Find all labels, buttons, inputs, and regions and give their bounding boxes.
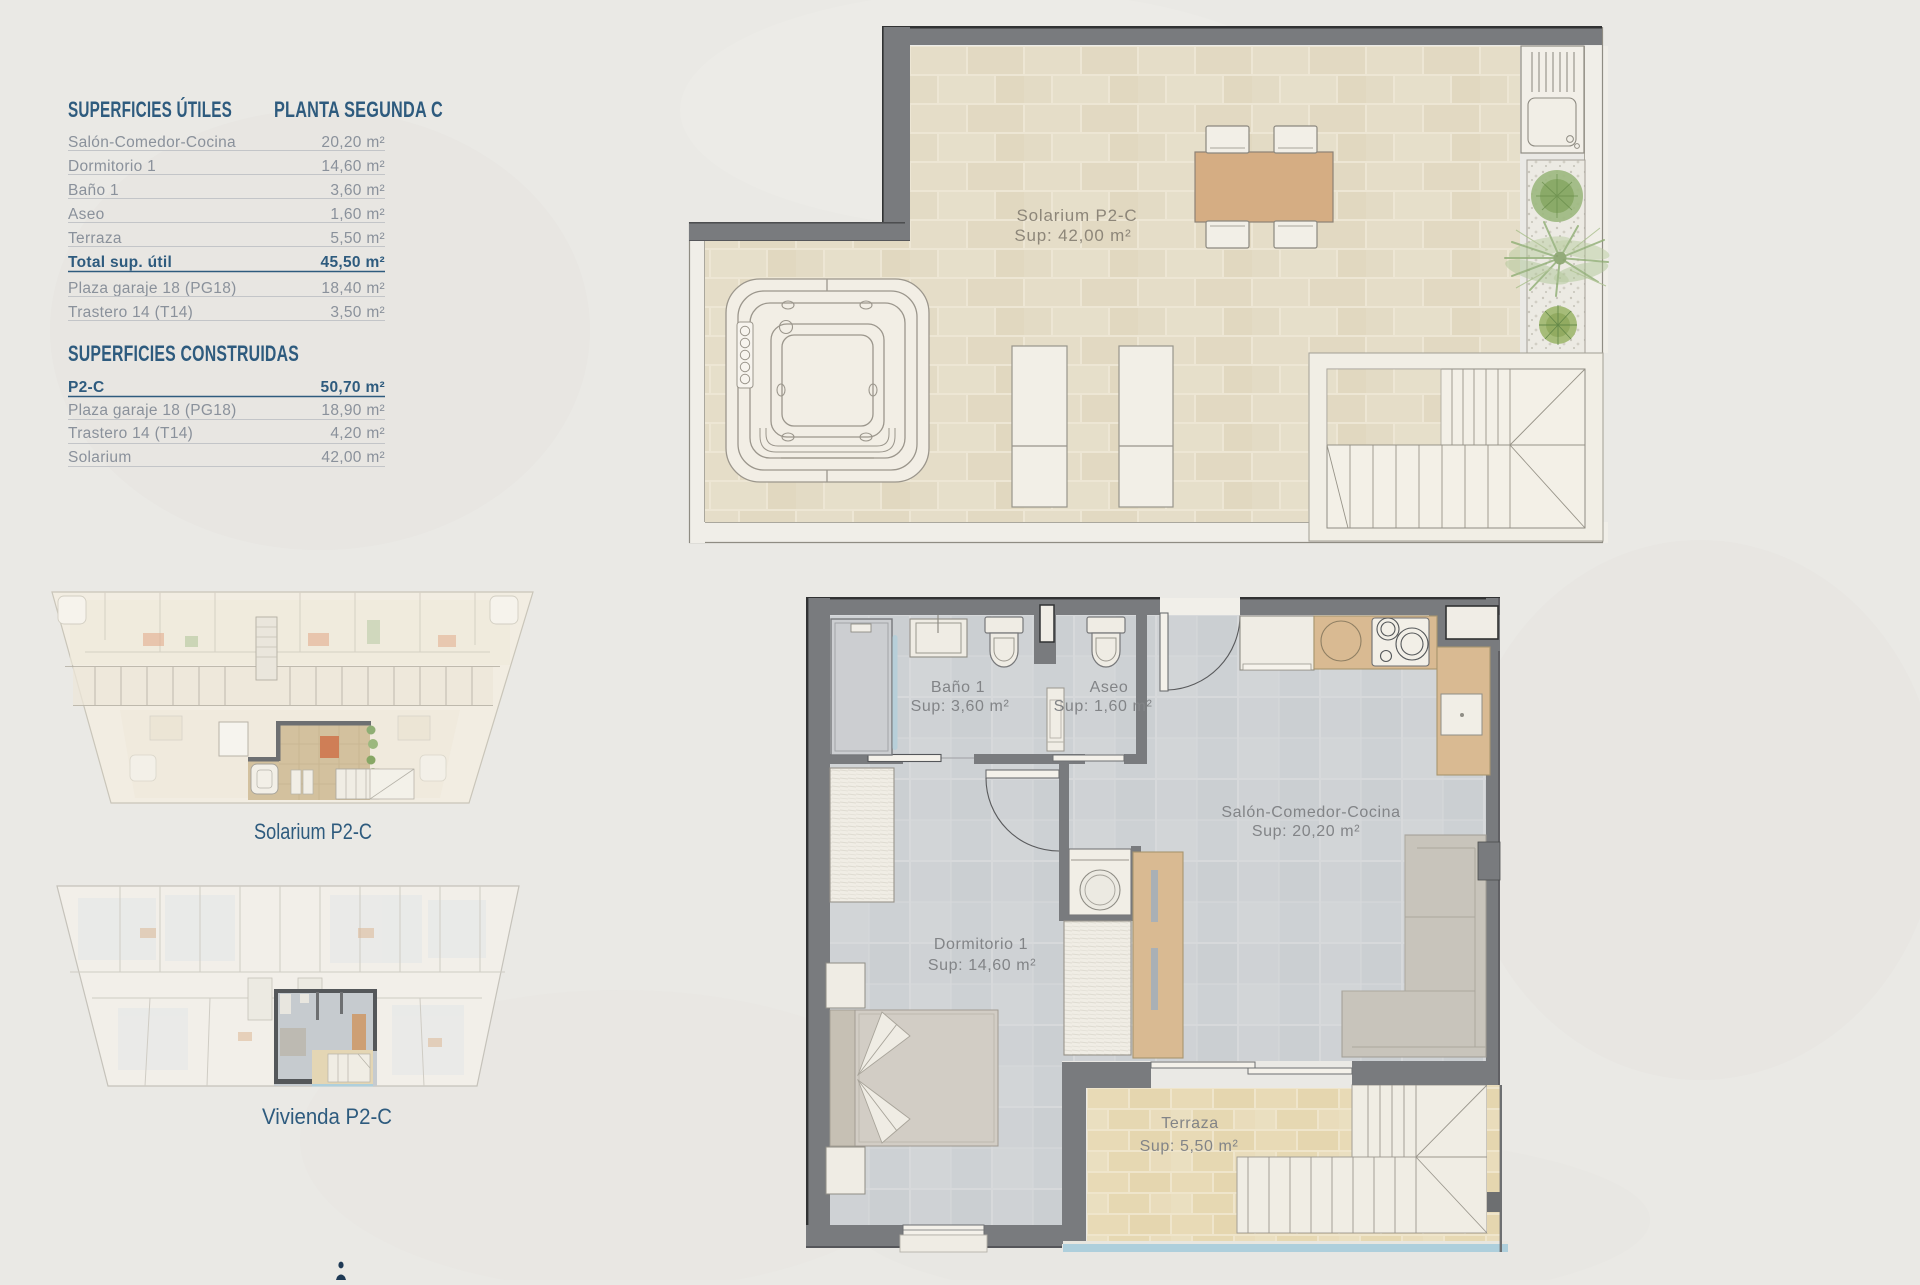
svg-text:Solarium: Solarium — [68, 449, 132, 466]
svg-text:Trastero 14 (T14): Trastero 14 (T14) — [68, 425, 193, 442]
svg-text:Vivienda P2-C: Vivienda P2-C — [262, 1104, 392, 1129]
svg-text:P2-C: P2-C — [68, 379, 105, 396]
svg-text:1,60 m²: 1,60 m² — [330, 206, 385, 223]
svg-text:3,60 m²: 3,60 m² — [330, 182, 385, 199]
svg-text:Dormitorio 1: Dormitorio 1 — [68, 158, 156, 175]
svg-text:Sup: 14,60 m²: Sup: 14,60 m² — [928, 957, 1036, 974]
svg-text:Total sup. útil: Total sup. útil — [68, 254, 172, 271]
svg-text:Baño 1: Baño 1 — [68, 182, 119, 199]
svg-text:PLANTA SEGUNDA C: PLANTA SEGUNDA C — [274, 97, 443, 122]
svg-text:Sup: 3,60 m²: Sup: 3,60 m² — [911, 698, 1010, 715]
svg-text:50,70 m²: 50,70 m² — [321, 379, 385, 396]
svg-text:Trastero 14 (T14): Trastero 14 (T14) — [68, 304, 193, 321]
svg-text:Sup: 5,50 m²: Sup: 5,50 m² — [1140, 1138, 1239, 1155]
svg-text:18,40 m²: 18,40 m² — [321, 280, 385, 297]
svg-text:20,20 m²: 20,20 m² — [321, 134, 385, 151]
svg-text:Sup: 1,60 m²: Sup: 1,60 m² — [1054, 698, 1153, 715]
svg-text:5,50 m²: 5,50 m² — [330, 230, 385, 247]
svg-text:Aseo: Aseo — [1090, 679, 1129, 696]
svg-text:Plaza garaje 18 (PG18): Plaza garaje 18 (PG18) — [68, 402, 237, 419]
svg-text:14,60 m²: 14,60 m² — [321, 158, 385, 175]
svg-text:Solarium P2-C: Solarium P2-C — [254, 819, 372, 844]
svg-text:42,00 m²: 42,00 m² — [321, 449, 385, 466]
svg-text:Baño 1: Baño 1 — [931, 679, 985, 696]
svg-text:3,50 m²: 3,50 m² — [330, 304, 385, 321]
svg-text:Sup: 20,20 m²: Sup: 20,20 m² — [1252, 823, 1360, 840]
svg-text:4,20 m²: 4,20 m² — [330, 425, 385, 442]
svg-text:SUPERFICIES ÚTILES: SUPERFICIES ÚTILES — [68, 97, 232, 122]
svg-text:SUPERFICIES CONSTRUIDAS: SUPERFICIES CONSTRUIDAS — [68, 341, 299, 366]
svg-text:45,50 m²: 45,50 m² — [321, 254, 385, 271]
svg-text:Dormitorio 1: Dormitorio 1 — [934, 936, 1028, 953]
svg-text:Salón-Comedor-Cocina: Salón-Comedor-Cocina — [68, 134, 236, 151]
svg-text:Terraza: Terraza — [68, 230, 122, 247]
svg-text:18,90 m²: 18,90 m² — [321, 402, 385, 419]
svg-text:Aseo: Aseo — [68, 206, 105, 223]
svg-text:Plaza garaje 18 (PG18): Plaza garaje 18 (PG18) — [68, 280, 237, 297]
svg-text:Terraza: Terraza — [1161, 1115, 1219, 1132]
svg-text:Salón-Comedor-Cocina: Salón-Comedor-Cocina — [1221, 804, 1400, 821]
svg-text:Solarium P2-C: Solarium P2-C — [1017, 206, 1138, 225]
svg-text:Sup: 42,00 m²: Sup: 42,00 m² — [1014, 226, 1131, 245]
